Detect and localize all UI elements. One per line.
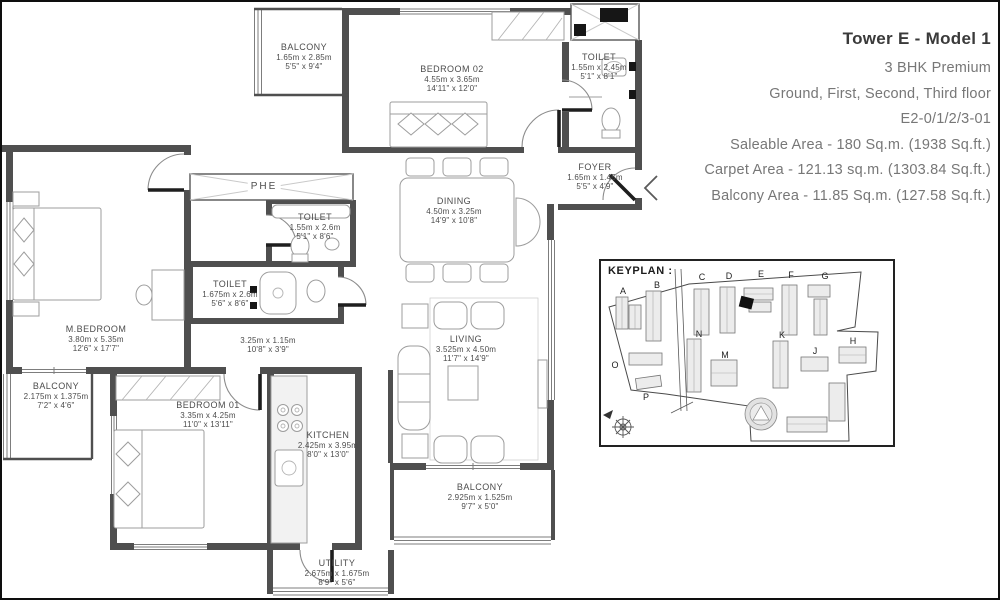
- room-label-balcony-top: BALCONY 1.65m x 2.85m 5'5" x 9'4": [276, 42, 332, 71]
- floorplan-drawing: [2, 2, 662, 600]
- svg-text:K: K: [779, 330, 785, 340]
- kitchen-furniture: [271, 376, 307, 543]
- svg-text:N: N: [696, 329, 703, 339]
- phe-label: PHE: [248, 181, 281, 193]
- svg-text:E: E: [758, 269, 764, 279]
- room-label-balcony-left: BALCONY 2.175m x 1.375m 7'2" x 4'6": [24, 381, 89, 410]
- svg-text:J: J: [813, 346, 818, 356]
- plan-unit-code: E2-0/1/2/3-01: [601, 111, 991, 127]
- room-label-toilet-mid: TOILET 1.55m x 2.6m 5'1" x 8'6": [290, 212, 341, 241]
- svg-text:O: O: [611, 360, 618, 370]
- svg-text:A: A: [620, 286, 626, 296]
- svg-text:H: H: [850, 336, 857, 346]
- living-furniture: [398, 298, 547, 463]
- keyplan-label: KEYPLAN :: [608, 265, 673, 277]
- plan-floors: Ground, First, Second, Third floor: [601, 86, 991, 102]
- svg-text:F: F: [788, 270, 794, 280]
- room-label-kitchen: KITCHEN 2.425m x 3.95m 8'0" x 13'0": [298, 430, 358, 459]
- svg-text:G: G: [821, 271, 828, 281]
- floorplan-page: BALCONY 1.65m x 2.85m 5'5" x 9'4" BEDROO…: [0, 0, 1000, 600]
- title-block: Tower E - Model 1 3 BHK Premium Ground, …: [601, 29, 991, 213]
- room-label-toilet-master: TOILET 1.675m x 2.6m 5'6" x 8'6": [202, 279, 258, 308]
- room-label-dining: DINING 4.50m x 3.25m 14'9" x 10'8": [426, 196, 482, 225]
- room-label-bedroom01: BEDROOM 01 3.35m x 4.25m 11'0" x 13'11": [176, 400, 240, 429]
- room-label-utility: UTILITY 2.675m x 1.675m 8'9" x 5'6": [305, 558, 370, 587]
- svg-text:M: M: [721, 350, 729, 360]
- keyplan: KEYPLAN :: [599, 259, 895, 447]
- svg-text:C: C: [699, 272, 706, 282]
- svg-text:P: P: [643, 392, 649, 402]
- plan-balcony-area: Balcony Area - 11.85 Sq.m. (127.58 Sq.ft…: [601, 188, 991, 204]
- room-label-foyer: FOYER 1.65m x 1.45m 5'5" x 4'9": [567, 162, 623, 191]
- keyplan-buildings: [616, 285, 866, 432]
- compass-icon: [603, 410, 634, 438]
- plan-type: 3 BHK Premium: [601, 60, 991, 76]
- bedroom01-furniture: [114, 376, 220, 528]
- room-label-toilet-top: TOILET 1.55m x 2.45m 5'1" x 8'1": [571, 52, 627, 81]
- room-label-balcony-bottom: BALCONY 2.925m x 1.525m 9'7" x 5'0": [448, 482, 513, 511]
- svg-text:B: B: [654, 280, 660, 290]
- room-label-living: LIVING 3.525m x 4.50m 11'7" x 14'9": [436, 334, 496, 363]
- keyplan-pond: [745, 398, 777, 430]
- keyplan-map: A B C D E F G H J K M N O P: [601, 261, 893, 445]
- svg-text:D: D: [726, 271, 733, 281]
- room-label-m-bedroom: M.BEDROOM 3.80m x 5.35m 12'6" x 17'7": [66, 324, 127, 353]
- plan-title: Tower E - Model 1: [601, 29, 991, 49]
- room-label-passage: 3.25m x 1.15m 10'8" x 3'9": [240, 336, 296, 355]
- plan-saleable-area: Saleable Area - 180 Sq.m. (1938 Sq.ft.): [601, 137, 991, 153]
- plan-carpet-area: Carpet Area - 121.13 sq.m. (1303.84 Sq.f…: [601, 162, 991, 178]
- room-label-bedroom02: BEDROOM 02 4.55m x 3.65m 14'11" x 12'0": [420, 64, 484, 93]
- master-bedroom-furniture: [13, 192, 184, 320]
